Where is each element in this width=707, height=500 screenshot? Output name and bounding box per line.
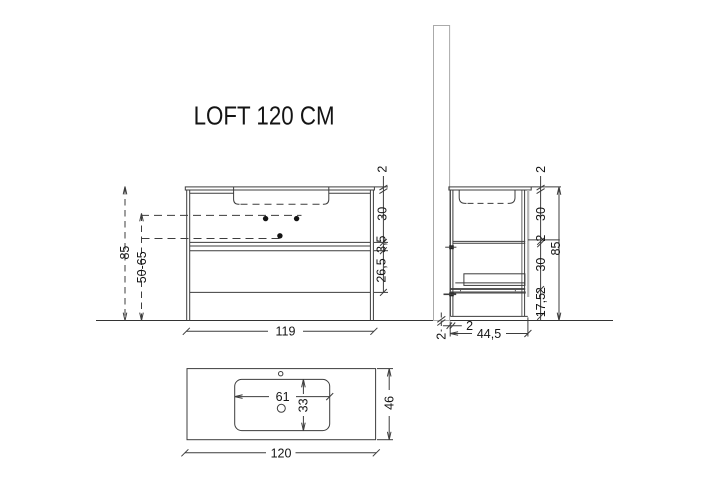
- svg-text:2: 2: [376, 166, 390, 173]
- svg-text:2: 2: [534, 235, 548, 242]
- svg-text:26,5: 26,5: [374, 258, 388, 282]
- svg-text:61: 61: [276, 390, 290, 404]
- svg-text:85: 85: [549, 242, 563, 256]
- svg-text:30: 30: [376, 207, 390, 221]
- svg-text:2: 2: [435, 333, 449, 340]
- svg-text:33: 33: [296, 398, 310, 412]
- svg-text:3,5: 3,5: [374, 235, 388, 252]
- svg-text:119: 119: [276, 325, 296, 339]
- svg-text:85: 85: [118, 246, 132, 260]
- svg-text:46: 46: [382, 396, 396, 410]
- svg-text:2: 2: [534, 287, 548, 294]
- svg-text:30: 30: [534, 258, 548, 272]
- svg-text:44,5: 44,5: [477, 327, 501, 341]
- svg-text:LOFT 120 CM: LOFT 120 CM: [194, 100, 335, 130]
- svg-text:2: 2: [466, 319, 473, 333]
- svg-text:30: 30: [534, 207, 548, 221]
- svg-text:50-65: 50-65: [135, 251, 149, 283]
- svg-text:17,5: 17,5: [534, 293, 548, 317]
- svg-text:2: 2: [534, 166, 548, 173]
- svg-text:120: 120: [271, 446, 292, 460]
